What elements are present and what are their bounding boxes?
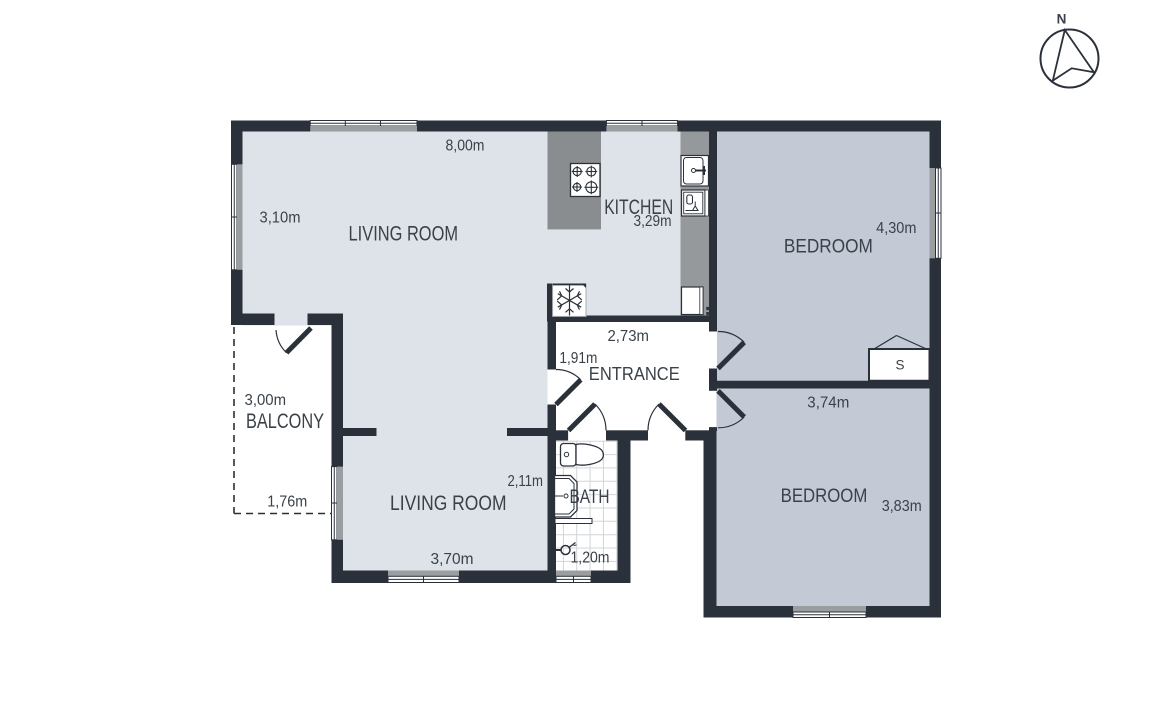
svg-text:S: S [895,358,904,373]
svg-text:3,00m: 3,00m [245,392,287,409]
svg-text:3,74m: 3,74m [807,395,849,412]
svg-text:8,00m: 8,00m [446,138,485,155]
svg-text:BEDROOM: BEDROOM [784,236,873,258]
svg-text:ENTRANCE: ENTRANCE [589,363,680,384]
svg-text:2,11m: 2,11m [507,473,543,490]
svg-text:3,83m: 3,83m [882,498,922,515]
svg-text:LIVING ROOM: LIVING ROOM [349,223,459,246]
svg-text:BATH: BATH [570,487,610,508]
svg-text:4,30m: 4,30m [876,220,916,237]
svg-text:BEDROOM: BEDROOM [781,485,868,507]
svg-text:BALCONY: BALCONY [246,410,324,433]
svg-text:3,29m: 3,29m [634,213,672,230]
svg-text:3,10m: 3,10m [260,209,301,226]
svg-text:LIVING ROOM: LIVING ROOM [390,492,507,515]
svg-text:3,70m: 3,70m [431,551,474,568]
svg-text:1,76m: 1,76m [267,494,307,511]
svg-text:1,20m: 1,20m [571,549,610,566]
svg-text:2,73m: 2,73m [607,328,649,345]
svg-text:N: N [1057,12,1067,27]
